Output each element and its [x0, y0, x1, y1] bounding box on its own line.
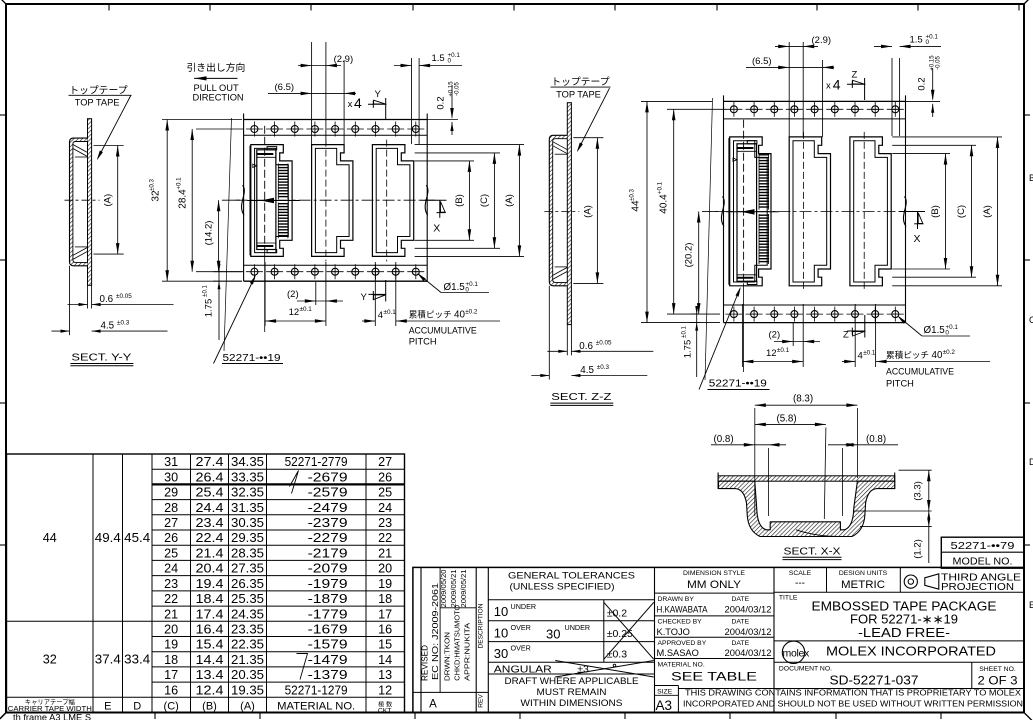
svg-text:DRAFT WHERE APPLICABLE: DRAFT WHERE APPLICABLE: [505, 676, 639, 686]
svg-text:37.4: 37.4: [95, 653, 121, 667]
svg-text:19.35: 19.35: [231, 683, 264, 697]
svg-text:4: 4: [858, 351, 863, 362]
svg-text:(8.3): (8.3): [793, 394, 813, 405]
svg-text:26.4: 26.4: [196, 470, 224, 484]
svg-text:REV: REV: [478, 694, 485, 708]
svg-text:x: x: [826, 81, 831, 92]
svg-text:4: 4: [833, 77, 841, 93]
svg-text:0: 0: [448, 58, 452, 65]
svg-text:UNDER: UNDER: [565, 623, 591, 632]
svg-text:2 OF 3: 2 OF 3: [978, 676, 1018, 688]
svg-text:10: 10: [494, 626, 508, 641]
svg-text:METRIC: METRIC: [841, 579, 885, 591]
svg-text:(A): (A): [103, 194, 114, 207]
svg-text:E: E: [1029, 600, 1033, 610]
svg-text:MOLEX INCORPORATED: MOLEX INCORPORATED: [826, 645, 996, 659]
svg-text:th frame A3 LME S: th frame A3 LME S: [13, 713, 91, 720]
svg-text:12: 12: [289, 307, 300, 318]
svg-text:13.4: 13.4: [196, 668, 224, 682]
svg-text:PROJECTION: PROJECTION: [941, 582, 1014, 593]
svg-text:DRWN:TKON: DRWN:TKON: [445, 632, 452, 681]
svg-text:19.4: 19.4: [196, 577, 224, 591]
svg-text:SEE TABLE: SEE TABLE: [671, 672, 757, 684]
svg-text:DRAWN BY: DRAWN BY: [658, 596, 695, 603]
svg-text:TOP TAPE: TOP TAPE: [75, 98, 120, 108]
svg-text:52271-••79: 52271-••79: [951, 540, 1015, 552]
svg-text:21.35: 21.35: [231, 653, 264, 667]
svg-text:1.5: 1.5: [432, 53, 445, 64]
svg-text:DIRECTION: DIRECTION: [193, 93, 244, 103]
svg-text:±0.1: ±0.1: [863, 349, 876, 356]
svg-text:23: 23: [164, 577, 178, 591]
svg-text:40: 40: [932, 350, 943, 361]
svg-text:15.4: 15.4: [196, 638, 224, 652]
svg-text:40: 40: [454, 310, 465, 321]
svg-text:(B): (B): [202, 701, 217, 713]
svg-text:DATE: DATE: [732, 596, 750, 603]
svg-text:±0.1: ±0.1: [777, 347, 790, 354]
svg-text:(0.8): (0.8): [866, 434, 886, 445]
svg-text:19: 19: [164, 638, 178, 652]
svg-text:(20.2): (20.2): [684, 243, 695, 268]
svg-text:-1679: -1679: [308, 623, 348, 637]
svg-text:34.35: 34.35: [231, 455, 264, 469]
svg-text:(0.8): (0.8): [714, 434, 734, 445]
svg-text:26.35: 26.35: [231, 577, 264, 591]
svg-text:(2.9): (2.9): [334, 54, 354, 65]
svg-text:12: 12: [766, 348, 777, 359]
svg-text:30: 30: [546, 627, 560, 642]
svg-text:SECT. X-X: SECT. X-X: [784, 546, 841, 558]
svg-text:±0.05: ±0.05: [596, 340, 612, 347]
svg-text:22.4: 22.4: [196, 531, 224, 545]
svg-text:22.35: 22.35: [231, 638, 264, 652]
svg-text:0.2: 0.2: [917, 77, 928, 90]
svg-text:APPROVED BY: APPROVED BY: [658, 640, 707, 647]
svg-text:x: x: [348, 99, 353, 110]
svg-text:DOCUMENT NO.: DOCUMENT NO.: [779, 666, 832, 673]
svg-text:30: 30: [494, 646, 508, 661]
svg-text:27.35: 27.35: [231, 562, 264, 576]
svg-text:14.4: 14.4: [196, 653, 224, 667]
svg-text:12.4: 12.4: [196, 683, 224, 697]
svg-text:23.4: 23.4: [196, 516, 224, 530]
svg-text:引き出し方向: 引き出し方向: [187, 61, 246, 74]
svg-text:(UNLESS SPECIFIED): (UNLESS SPECIFIED): [510, 582, 615, 592]
svg-text:15: 15: [378, 638, 392, 652]
svg-text:2004/03/12: 2004/03/12: [725, 648, 772, 658]
svg-text:31: 31: [164, 455, 178, 469]
svg-text:30.35: 30.35: [231, 516, 264, 530]
svg-text:UNDER: UNDER: [511, 602, 537, 611]
svg-text:PITCH: PITCH: [886, 379, 914, 389]
svg-text:APPR:NUKITA: APPR:NUKITA: [465, 622, 472, 680]
svg-text:25: 25: [164, 546, 178, 560]
svg-text:(5.8): (5.8): [777, 414, 797, 425]
svg-text:28.4: 28.4: [178, 189, 189, 209]
svg-text:FOR 52271-∗∗19: FOR 52271-∗∗19: [850, 613, 958, 627]
svg-text:2004/03/12: 2004/03/12: [725, 605, 772, 615]
svg-text:31.35: 31.35: [231, 501, 264, 515]
svg-text:24: 24: [164, 562, 178, 576]
svg-text:MM ONLY: MM ONLY: [687, 579, 742, 591]
svg-text:(C): (C): [164, 701, 179, 713]
svg-text:4: 4: [354, 95, 362, 111]
svg-text:Ø1.5: Ø1.5: [444, 282, 466, 293]
svg-text:±0.1: ±0.1: [682, 326, 688, 338]
svg-text:DESCRIPTION: DESCRIPTION: [478, 603, 485, 648]
svg-text:(A): (A): [582, 205, 593, 218]
svg-text:25: 25: [378, 486, 392, 500]
svg-text:0.2: 0.2: [436, 96, 447, 109]
svg-text:17: 17: [378, 607, 392, 621]
svg-text:DATE: DATE: [732, 619, 750, 626]
svg-text:(6.5): (6.5): [275, 82, 295, 93]
svg-text:52271-••19: 52271-••19: [709, 379, 768, 390]
svg-text:2009/05/20: 2009/05/20: [441, 569, 448, 607]
svg-text:-1879: -1879: [308, 592, 348, 606]
svg-text:CHECKED BY: CHECKED BY: [658, 619, 703, 626]
svg-text:ACCUMULATIVE: ACCUMULATIVE: [886, 367, 954, 377]
svg-text:0: 0: [926, 39, 930, 46]
svg-text:23: 23: [378, 516, 392, 530]
svg-text:(B): (B): [454, 194, 465, 207]
svg-text:18.4: 18.4: [196, 592, 224, 606]
svg-text:(14.2): (14.2): [204, 221, 215, 246]
svg-text:DESIGN UNITS: DESIGN UNITS: [839, 570, 888, 577]
svg-text:30: 30: [164, 470, 178, 484]
svg-text:±0.2: ±0.2: [943, 349, 956, 356]
svg-text:24: 24: [378, 501, 392, 515]
svg-text:32: 32: [43, 653, 57, 667]
svg-text:4.5: 4.5: [101, 321, 115, 332]
svg-text:H.KAWABATA: H.KAWABATA: [657, 605, 709, 615]
svg-text:-2079: -2079: [308, 562, 348, 576]
svg-text:(A): (A): [982, 205, 993, 218]
svg-text:10: 10: [494, 604, 508, 619]
svg-text:25.4: 25.4: [196, 486, 224, 500]
svg-text:WITHIN DIMENSIONS: WITHIN DIMENSIONS: [521, 698, 623, 708]
svg-text:DATE: DATE: [732, 640, 750, 647]
svg-text:累積ピッチ: 累積ピッチ: [409, 309, 452, 320]
svg-text:28.35: 28.35: [231, 546, 264, 560]
svg-text:2009/05/21: 2009/05/21: [461, 569, 468, 607]
svg-text:-0.05: -0.05: [455, 82, 461, 96]
svg-text:19: 19: [378, 577, 392, 591]
svg-text:27: 27: [378, 455, 392, 469]
svg-text:トップテープ: トップテープ: [551, 76, 609, 88]
svg-text:21: 21: [164, 607, 178, 621]
svg-text:±0.3: ±0.3: [149, 178, 156, 191]
svg-text:22: 22: [378, 531, 392, 545]
svg-text:-1479: -1479: [308, 653, 348, 667]
svg-text:-2579: -2579: [308, 486, 348, 500]
svg-text:DIMENSION STYLE: DIMENSION STYLE: [683, 570, 745, 577]
svg-text:(3.3): (3.3): [913, 481, 924, 501]
svg-text:4.5: 4.5: [580, 365, 594, 376]
svg-text:24.4: 24.4: [196, 501, 224, 515]
svg-text:---: ---: [795, 578, 805, 589]
svg-text:21.4: 21.4: [196, 546, 224, 560]
svg-text:-2679: -2679: [308, 470, 348, 484]
svg-text:49.4: 49.4: [95, 531, 121, 545]
svg-text:26: 26: [164, 531, 178, 545]
svg-text:A3: A3: [656, 698, 673, 713]
svg-text:-1779: -1779: [308, 607, 348, 621]
svg-text:52271-1279: 52271-1279: [285, 683, 348, 697]
svg-text:(2): (2): [769, 330, 781, 341]
svg-text:14: 14: [378, 653, 392, 667]
svg-text:2004/03/12: 2004/03/12: [725, 627, 772, 637]
svg-text:SECT. Z-Z: SECT. Z-Z: [551, 391, 612, 403]
svg-text:17.4: 17.4: [196, 607, 224, 621]
svg-text:45.4: 45.4: [124, 531, 150, 545]
svg-text:12: 12: [378, 683, 392, 697]
svg-text:ACCUMULATIVE: ACCUMULATIVE: [409, 326, 477, 336]
svg-text:molex: molex: [783, 647, 811, 659]
svg-text:SCALE: SCALE: [789, 570, 812, 577]
svg-text:±0.3: ±0.3: [629, 188, 636, 201]
svg-text:-1379: -1379: [308, 668, 348, 682]
svg-text:D: D: [1029, 457, 1033, 467]
svg-text:-1579: -1579: [308, 638, 348, 652]
svg-text:MODEL NO.: MODEL NO.: [953, 556, 1013, 568]
svg-text:-LEAD FREE-: -LEAD FREE-: [858, 626, 950, 640]
svg-text:PITCH: PITCH: [409, 337, 437, 347]
svg-text:M.SASAO: M.SASAO: [657, 648, 699, 658]
svg-text:SHEET NO.: SHEET NO.: [979, 666, 1016, 673]
svg-text:MATERIAL NO.: MATERIAL NO.: [277, 701, 355, 713]
svg-text:EMBOSSED TAPE PACKAGE: EMBOSSED TAPE PACKAGE: [812, 600, 997, 614]
svg-text:4: 4: [378, 310, 383, 321]
svg-text:20: 20: [378, 562, 392, 576]
svg-text:+0.1: +0.1: [176, 177, 183, 190]
svg-text:INCORPORATED AND SHOULD NOT BE: INCORPORATED AND SHOULD NOT BE USED WITH…: [683, 700, 1023, 709]
svg-text:X: X: [433, 223, 440, 235]
svg-text:28: 28: [164, 501, 178, 515]
svg-text:23.35: 23.35: [231, 623, 264, 637]
svg-text:+0.1: +0.1: [657, 181, 664, 194]
svg-text:GENERAL TOLERANCES: GENERAL TOLERANCES: [508, 571, 635, 581]
svg-text:-2379: -2379: [308, 516, 348, 530]
svg-text:トップテープ: トップテープ: [69, 84, 127, 96]
svg-text:29: 29: [164, 486, 178, 500]
svg-text:K.TOJO: K.TOJO: [657, 627, 690, 637]
svg-text:-2179: -2179: [308, 546, 348, 560]
svg-text:±0.3: ±0.3: [607, 649, 628, 661]
svg-text:MUST REMAIN: MUST REMAIN: [537, 687, 607, 697]
svg-text:Ø1.5: Ø1.5: [924, 325, 946, 336]
svg-text:累積ピッチ: 累積ピッチ: [886, 349, 929, 360]
svg-text:27: 27: [164, 516, 178, 530]
svg-text:-0.05: -0.05: [936, 56, 942, 70]
svg-text:(2.9): (2.9): [812, 35, 832, 46]
svg-text:20.4: 20.4: [196, 562, 224, 576]
svg-text:B: B: [1029, 173, 1033, 183]
svg-text:±0.1: ±0.1: [384, 309, 397, 316]
svg-text:SIZE: SIZE: [657, 689, 673, 696]
svg-text:SECT. Y-Y: SECT. Y-Y: [71, 352, 131, 364]
svg-text:(2): (2): [287, 289, 299, 300]
svg-text:OVER: OVER: [511, 623, 531, 632]
svg-text:13: 13: [378, 668, 392, 682]
svg-text:±0.1: ±0.1: [300, 306, 313, 313]
svg-text:1.75: 1.75: [683, 340, 694, 359]
svg-text:C: C: [1029, 315, 1033, 325]
svg-text:EC NO: J2009-2061: EC NO: J2009-2061: [431, 583, 440, 680]
svg-text:E: E: [104, 701, 111, 713]
svg-text:29.35: 29.35: [231, 531, 264, 545]
svg-text:CKT.: CKT.: [378, 707, 393, 714]
svg-text:THIS DRAWING CONTAINS INFORMAT: THIS DRAWING CONTAINS INFORMATION THAT I…: [685, 689, 1022, 698]
svg-text:26: 26: [378, 470, 392, 484]
svg-text:21: 21: [378, 546, 392, 560]
svg-text:1.75: 1.75: [204, 299, 215, 318]
svg-text:(6.5): (6.5): [752, 56, 772, 67]
svg-text:44: 44: [43, 531, 57, 545]
svg-text:±0.3: ±0.3: [117, 319, 130, 326]
svg-text:MATERIAL NO.: MATERIAL NO.: [658, 662, 705, 669]
svg-text:Y: Y: [375, 89, 382, 100]
svg-text:PULL OUT: PULL OUT: [194, 83, 239, 93]
svg-text:D: D: [133, 701, 141, 713]
svg-text:24.35: 24.35: [231, 607, 264, 621]
svg-text:33.35: 33.35: [231, 470, 264, 484]
svg-text:(C): (C): [479, 194, 490, 207]
svg-text:REVISED: REVISED: [421, 645, 430, 681]
svg-text:A: A: [429, 699, 437, 711]
svg-text:33.4: 33.4: [124, 653, 150, 667]
svg-text:Y: Y: [361, 292, 368, 303]
svg-text:16: 16: [164, 683, 178, 697]
svg-text:Z: Z: [852, 70, 858, 81]
svg-text:27.4: 27.4: [196, 455, 224, 469]
svg-text:52271-••19: 52271-••19: [223, 353, 282, 364]
svg-text:17: 17: [164, 668, 178, 682]
svg-text:18: 18: [378, 592, 392, 606]
svg-text:52271-2779: 52271-2779: [285, 455, 348, 469]
svg-text:32.35: 32.35: [231, 486, 264, 500]
svg-text:16: 16: [378, 623, 392, 637]
svg-text:(A): (A): [504, 194, 515, 207]
svg-text:SD-52271-037: SD-52271-037: [830, 674, 919, 688]
svg-text:(B): (B): [930, 205, 941, 218]
svg-text:±0.1: ±0.1: [203, 285, 209, 297]
svg-text:0.6: 0.6: [579, 341, 593, 352]
svg-text:0.6: 0.6: [100, 294, 114, 305]
svg-text:-2279: -2279: [308, 531, 348, 545]
svg-text:0: 0: [465, 287, 469, 294]
svg-text:18: 18: [164, 653, 178, 667]
svg-text:(1.2): (1.2): [913, 539, 924, 559]
svg-text:25.35: 25.35: [231, 592, 264, 606]
svg-text:22: 22: [164, 592, 178, 606]
svg-text:20.35: 20.35: [231, 668, 264, 682]
svg-text:TOP TAPE: TOP TAPE: [556, 89, 601, 99]
svg-text:±0.05: ±0.05: [116, 293, 132, 300]
svg-text:0: 0: [945, 330, 949, 337]
svg-text:20: 20: [164, 623, 178, 637]
svg-text:CHKD:HMATSUMOTO: CHKD:HMATSUMOTO: [455, 604, 462, 681]
svg-text:1.5: 1.5: [910, 35, 923, 46]
svg-text:±0.3: ±0.3: [597, 364, 610, 371]
svg-text:OVER: OVER: [511, 644, 531, 653]
svg-text:16.4: 16.4: [196, 623, 224, 637]
svg-text:(A): (A): [240, 701, 255, 713]
svg-text:2009/05/21: 2009/05/21: [451, 569, 458, 607]
svg-text:X: X: [914, 233, 921, 245]
svg-text:-2479: -2479: [308, 501, 348, 515]
svg-text:(C): (C): [956, 205, 967, 218]
svg-text:-1979: -1979: [308, 577, 348, 591]
svg-text:40.4: 40.4: [659, 194, 670, 214]
svg-text:TITLE: TITLE: [779, 595, 798, 602]
svg-text:ANGULAR: ANGULAR: [494, 664, 552, 676]
svg-text:±0.2: ±0.2: [465, 308, 478, 315]
